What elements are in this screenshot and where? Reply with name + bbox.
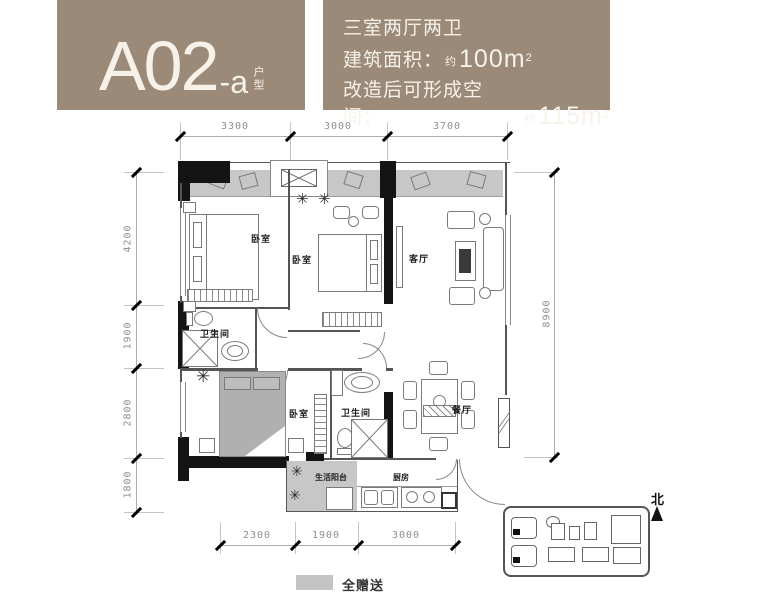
window (180, 382, 186, 432)
nightstand-icon (183, 301, 196, 312)
room-label-bedroom-2: 卧室 (292, 253, 312, 266)
sink-basin-icon (381, 490, 394, 505)
wall-segment (288, 330, 360, 332)
chair-icon (429, 361, 448, 375)
plant-icon: ✳ (318, 192, 331, 207)
cabinet-icon (331, 370, 343, 396)
chair-icon (333, 206, 350, 219)
dimension-line-bottom (220, 545, 456, 546)
toilet-icon (194, 311, 213, 326)
area-approx: 约 (445, 53, 457, 69)
nightstand-icon (183, 202, 196, 213)
room-label-dining: 餐厅 (452, 403, 472, 416)
plant-icon: ✳ (196, 368, 210, 385)
armchair-icon (447, 211, 475, 229)
wall-segment (384, 196, 393, 304)
area-value: 100m (459, 47, 526, 72)
unit-code: A02 (99, 36, 218, 98)
renov-approx: 约 (524, 110, 536, 126)
site-building-shape (582, 547, 609, 562)
room-label-living: 客厅 (409, 252, 429, 265)
bed-line (366, 234, 367, 292)
dim-top-1: 3300 (215, 121, 255, 132)
room-label-kitchen: 厨房 (393, 472, 409, 483)
door-arc (257, 308, 287, 338)
unit-code-panel: A02 -a 户型 (57, 0, 305, 110)
chair-icon (429, 437, 448, 451)
extension-line (124, 458, 164, 459)
tv-console-icon (396, 226, 403, 288)
chair-icon (403, 381, 417, 400)
entry-door-arc (459, 459, 505, 505)
wardrobe-icon (322, 312, 382, 327)
washing-machine-icon (326, 487, 353, 510)
pillow-icon (370, 264, 378, 284)
toilet-icon (186, 312, 193, 326)
wall-segment (288, 170, 290, 310)
wall-segment (386, 368, 393, 371)
extension-line (387, 122, 388, 160)
area-sup: 2 (526, 52, 533, 64)
tick-mark (549, 452, 560, 463)
dim-left-4: 1800 (123, 465, 134, 505)
renov-sup: 2 (603, 109, 610, 121)
tv-icon (459, 249, 471, 273)
door-arc (363, 343, 387, 368)
pillow-icon (224, 377, 251, 390)
site-building-shape (511, 545, 537, 567)
legend-swatch (296, 575, 333, 590)
dim-left-1: 4200 (123, 219, 134, 259)
pillow-icon (370, 240, 378, 260)
unit-marker (513, 529, 520, 535)
site-building-shape (569, 526, 580, 540)
dimension-line-left (136, 172, 137, 512)
blanket-fold (245, 426, 285, 456)
sofa-icon (483, 227, 504, 291)
unit-marker (513, 557, 520, 563)
extension-line (295, 522, 296, 554)
site-building-shape (584, 522, 597, 540)
dim-top-3: 3700 (427, 121, 467, 132)
sink-basin-icon (351, 376, 373, 389)
door-arc (436, 459, 457, 480)
side-table-icon (479, 287, 491, 299)
renov-value: 115m (538, 104, 603, 129)
extension-line (180, 122, 181, 160)
shower-icon (351, 419, 388, 458)
site-building-shape (548, 547, 575, 562)
chair-icon (461, 381, 475, 400)
armchair-icon (449, 287, 475, 305)
sink-basin-icon (364, 490, 378, 505)
extension-line (507, 122, 508, 160)
room-label-bathroom-1: 卫生间 (200, 327, 230, 340)
wall-segment (255, 307, 257, 369)
wall-segment (288, 368, 362, 371)
nightstand-icon (199, 438, 215, 453)
extension-line (455, 522, 456, 554)
dim-left-2: 1900 (123, 316, 134, 356)
layout-spec: 三室两厅两卫 (343, 13, 610, 40)
dimension-line-right (554, 172, 555, 458)
window (505, 215, 511, 325)
dim-bottom-2: 1900 (306, 530, 346, 541)
pillow-icon (253, 377, 280, 390)
wall-segment (181, 456, 289, 468)
dresser-icon (187, 289, 253, 302)
nightstand-icon (288, 438, 304, 453)
burner-icon (406, 491, 418, 503)
side-table-icon (348, 216, 359, 227)
extension-line (124, 305, 164, 306)
north-arrow-icon (651, 506, 663, 521)
legend-label: 全赠送 (342, 575, 384, 594)
room-label-bedroom-1: 卧室 (251, 232, 271, 245)
dim-left-3: 2800 (123, 393, 134, 433)
extension-line (124, 172, 164, 173)
extension-line (358, 522, 359, 554)
unit-type-label: 户型 (252, 66, 263, 92)
floorplan-page: A02 -a 户型 三室两厅两卫 建筑面积：约100m2 改造后可形成空间：约1… (0, 0, 783, 597)
site-building-shape (611, 515, 641, 544)
area-label: 建筑面积： (343, 45, 443, 72)
site-building-shape (511, 517, 537, 539)
side-table-icon (479, 213, 491, 225)
unit-variant: -a (220, 66, 248, 98)
pillow-icon (193, 222, 202, 248)
dimension-line-top (180, 136, 508, 137)
window (180, 208, 186, 296)
pillow-icon (193, 256, 202, 282)
bed-line (206, 214, 207, 300)
chair-icon (403, 410, 417, 429)
dim-right-1: 8900 (542, 294, 553, 334)
room-label-bathroom-2: 卫生间 (341, 406, 371, 419)
dim-bottom-1: 2300 (237, 530, 277, 541)
wardrobe-icon (314, 394, 327, 454)
renovation-spec: 改造后可形成空间：约115m2 (343, 75, 610, 129)
site-building-shape (613, 547, 641, 564)
room-label-balcony: 生活阳台 (315, 472, 347, 483)
dim-bottom-3: 3000 (386, 530, 426, 541)
plant-icon: ✳ (291, 464, 303, 478)
plant-icon: ✳ (296, 192, 309, 207)
extension-line (124, 368, 164, 369)
extension-line (124, 512, 164, 513)
site-building-shape (551, 523, 565, 540)
flue-x-icon (281, 169, 317, 187)
wall-segment (457, 460, 458, 512)
area-spec: 建筑面积：约100m2 (343, 45, 610, 72)
burner-icon (423, 491, 435, 503)
sink-basin-icon (227, 345, 243, 357)
extension-line (290, 122, 291, 160)
dim-top-2: 3000 (318, 121, 358, 132)
appliance-icon (441, 492, 457, 509)
room-label-bedroom-3: 卧室 (289, 407, 309, 420)
plant-icon: ✳ (289, 488, 301, 502)
wall-segment (380, 161, 396, 198)
chair-icon (362, 206, 379, 219)
wall-segment (286, 511, 458, 512)
unit-spec-panel: 三室两厅两卫 建筑面积：约100m2 改造后可形成空间：约115m2 (323, 0, 610, 110)
wall-segment (324, 458, 436, 460)
extension-line (220, 522, 221, 554)
entry-door-panel (498, 398, 510, 448)
